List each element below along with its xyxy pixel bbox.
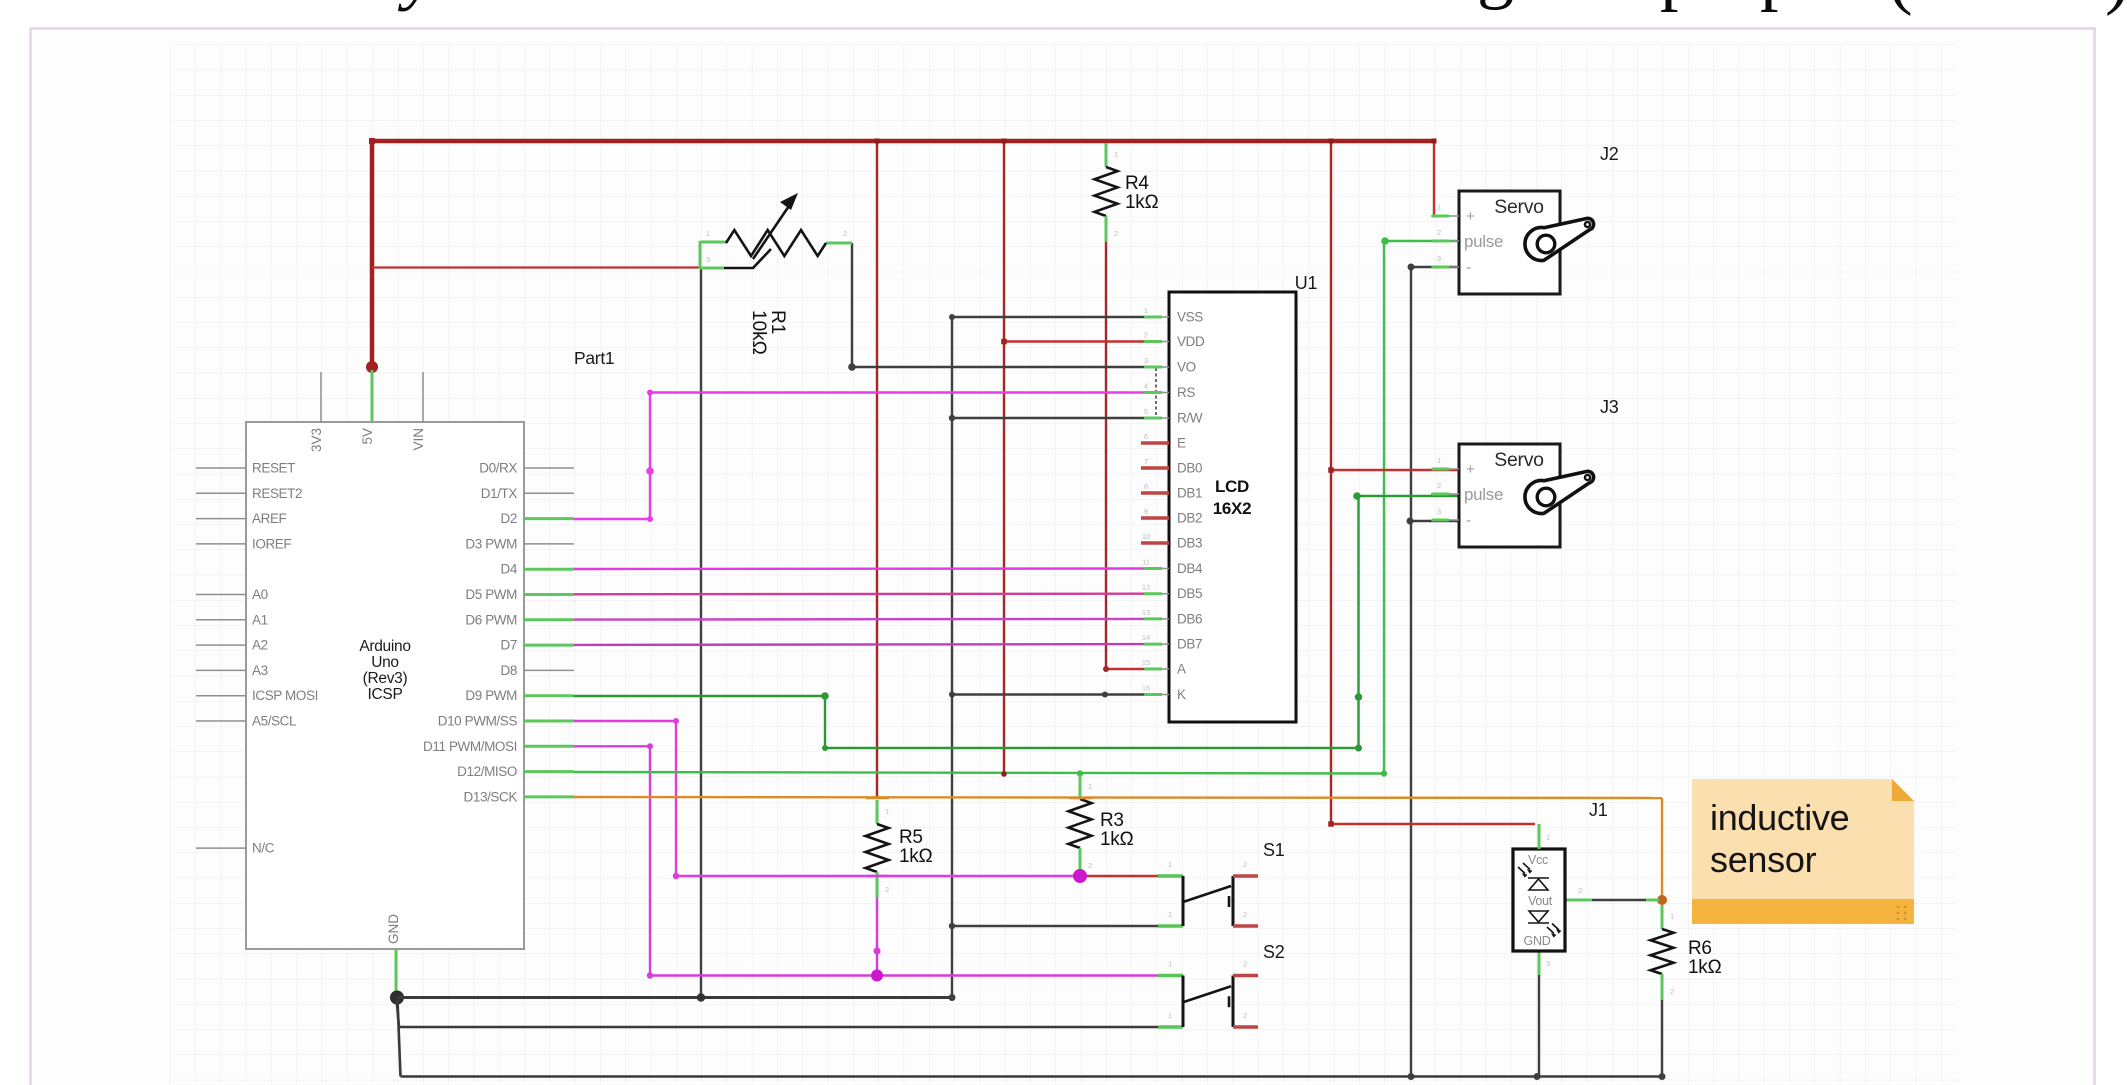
svg-text:1: 1 bbox=[1088, 782, 1092, 791]
svg-text:DB3: DB3 bbox=[1177, 536, 1202, 551]
svg-text:3: 3 bbox=[1144, 356, 1148, 365]
svg-text:2: 2 bbox=[1243, 960, 1247, 969]
svg-text:16: 16 bbox=[1142, 684, 1150, 693]
svg-text:10: 10 bbox=[1142, 532, 1150, 541]
svg-text:2: 2 bbox=[1670, 987, 1674, 996]
svg-text:VDD: VDD bbox=[1177, 334, 1205, 349]
svg-text:1: 1 bbox=[1144, 306, 1148, 315]
svg-text:D0/RX: D0/RX bbox=[479, 461, 517, 476]
svg-text:IOREF: IOREF bbox=[252, 536, 291, 551]
svg-text:A3: A3 bbox=[252, 663, 268, 678]
svg-text:(Rev3): (Rev3) bbox=[363, 670, 408, 687]
svg-text:D4: D4 bbox=[501, 562, 518, 577]
svg-text:D1/TX: D1/TX bbox=[481, 486, 518, 501]
svg-text:RESET2: RESET2 bbox=[252, 486, 302, 501]
svg-text:+: + bbox=[1466, 208, 1475, 225]
svg-text:D10 PWM/SS: D10 PWM/SS bbox=[438, 714, 518, 729]
svg-text:ICSP: ICSP bbox=[368, 686, 403, 703]
svg-text:S1: S1 bbox=[1263, 840, 1285, 860]
svg-text:A2: A2 bbox=[252, 638, 268, 653]
svg-text:R/W: R/W bbox=[1177, 411, 1203, 426]
svg-text:8: 8 bbox=[1144, 482, 1148, 491]
svg-text:2: 2 bbox=[1243, 860, 1247, 869]
svg-text:1: 1 bbox=[1670, 912, 1674, 921]
svg-text:2: 2 bbox=[1114, 229, 1118, 238]
svg-text:Vcc: Vcc bbox=[1528, 853, 1548, 867]
svg-text:DB0: DB0 bbox=[1177, 461, 1202, 476]
svg-text:10kΩ: 10kΩ bbox=[748, 310, 769, 355]
svg-text:7: 7 bbox=[1144, 457, 1148, 466]
svg-text:1: 1 bbox=[1168, 960, 1172, 969]
svg-text:Part1: Part1 bbox=[574, 348, 614, 368]
svg-text:13: 13 bbox=[1142, 608, 1150, 617]
svg-text:2: 2 bbox=[843, 229, 847, 238]
svg-text:1: 1 bbox=[1546, 833, 1550, 842]
svg-text:1: 1 bbox=[1437, 456, 1441, 465]
svg-text:AREF: AREF bbox=[252, 511, 287, 526]
svg-text:DB7: DB7 bbox=[1177, 637, 1202, 652]
svg-text:K: K bbox=[1177, 687, 1186, 702]
svg-text:Servo: Servo bbox=[1494, 196, 1544, 218]
svg-text:1kΩ: 1kΩ bbox=[1688, 957, 1721, 978]
svg-text:2: 2 bbox=[1088, 861, 1092, 870]
svg-text:GND: GND bbox=[1524, 934, 1551, 948]
svg-text:14: 14 bbox=[1142, 633, 1150, 642]
svg-text:D13/SCK: D13/SCK bbox=[464, 789, 518, 804]
svg-text:-: - bbox=[1466, 512, 1471, 529]
svg-text:LCD: LCD bbox=[1215, 477, 1249, 496]
svg-text:3: 3 bbox=[706, 255, 710, 264]
svg-text:3: 3 bbox=[1437, 254, 1441, 263]
svg-text:11: 11 bbox=[1142, 558, 1150, 567]
svg-text:R3: R3 bbox=[1100, 810, 1124, 831]
svg-text:12: 12 bbox=[1142, 583, 1150, 592]
svg-text:D9 PWM: D9 PWM bbox=[465, 688, 517, 703]
svg-text:D12/MISO: D12/MISO bbox=[457, 764, 517, 779]
svg-text:GND: GND bbox=[386, 914, 401, 944]
svg-text:J1: J1 bbox=[1589, 800, 1608, 820]
svg-text:Uno: Uno bbox=[371, 654, 399, 671]
svg-text:Servo: Servo bbox=[1494, 449, 1544, 471]
svg-text:1kΩ: 1kΩ bbox=[1125, 192, 1158, 213]
svg-text:A0: A0 bbox=[252, 587, 268, 602]
svg-text:pulse: pulse bbox=[1464, 485, 1503, 504]
svg-text:Arduino: Arduino bbox=[359, 638, 410, 655]
svg-text:1kΩ: 1kΩ bbox=[1100, 829, 1133, 850]
svg-text:S2: S2 bbox=[1263, 942, 1285, 962]
svg-text:1: 1 bbox=[1168, 910, 1172, 919]
svg-text:1: 1 bbox=[1114, 150, 1118, 159]
svg-text:J2: J2 bbox=[1600, 144, 1619, 164]
svg-text:DB2: DB2 bbox=[1177, 511, 1202, 526]
svg-text:3: 3 bbox=[1546, 959, 1550, 968]
svg-text:DB1: DB1 bbox=[1177, 486, 1202, 501]
svg-text:RESET: RESET bbox=[252, 461, 295, 476]
svg-text:1: 1 bbox=[706, 229, 710, 238]
svg-text:2: 2 bbox=[1578, 886, 1582, 895]
svg-text:D3 PWM: D3 PWM bbox=[465, 536, 517, 551]
svg-text:R1: R1 bbox=[767, 310, 788, 334]
svg-text:R5: R5 bbox=[899, 827, 923, 848]
svg-text:VO: VO bbox=[1177, 360, 1196, 375]
svg-text:2: 2 bbox=[1243, 1011, 1247, 1020]
svg-text:A: A bbox=[1177, 662, 1186, 677]
svg-text:sensor: sensor bbox=[1710, 839, 1817, 880]
svg-text:D11 PWM/MOSI: D11 PWM/MOSI bbox=[423, 739, 517, 754]
svg-text:A5/SCL: A5/SCL bbox=[252, 714, 297, 729]
svg-text:D8: D8 bbox=[501, 663, 517, 678]
svg-text:1: 1 bbox=[1168, 860, 1172, 869]
svg-text:2: 2 bbox=[1437, 481, 1441, 490]
svg-text:pulse: pulse bbox=[1464, 232, 1503, 251]
svg-text:D6 PWM: D6 PWM bbox=[465, 612, 517, 627]
svg-text:DB6: DB6 bbox=[1177, 611, 1202, 626]
svg-text:N/C: N/C bbox=[252, 841, 275, 856]
svg-text:ICSP MOSI: ICSP MOSI bbox=[252, 688, 318, 703]
svg-text:+: + bbox=[1466, 461, 1475, 478]
svg-text:5: 5 bbox=[1144, 407, 1148, 416]
svg-text:3: 3 bbox=[1437, 507, 1441, 516]
svg-text:U1: U1 bbox=[1295, 273, 1318, 293]
svg-text:2: 2 bbox=[885, 885, 889, 894]
svg-text:3V3: 3V3 bbox=[309, 428, 324, 452]
svg-text:15: 15 bbox=[1142, 658, 1150, 667]
svg-text:1kΩ: 1kΩ bbox=[899, 846, 932, 867]
svg-text:2: 2 bbox=[1144, 331, 1148, 340]
svg-text:DB4: DB4 bbox=[1177, 561, 1203, 576]
svg-text:DB5: DB5 bbox=[1177, 586, 1202, 601]
svg-text:D5 PWM: D5 PWM bbox=[465, 587, 517, 602]
svg-text:-: - bbox=[1466, 259, 1471, 276]
svg-text:5V: 5V bbox=[360, 428, 375, 445]
svg-text:VSS: VSS bbox=[1177, 310, 1203, 325]
svg-text:2: 2 bbox=[1243, 910, 1247, 919]
svg-text:E: E bbox=[1177, 436, 1186, 451]
svg-text:2: 2 bbox=[1437, 228, 1441, 237]
svg-text:1: 1 bbox=[1437, 203, 1441, 212]
svg-text:Vout: Vout bbox=[1528, 894, 1553, 908]
svg-text:6: 6 bbox=[1144, 432, 1148, 441]
svg-text:RS: RS bbox=[1177, 385, 1195, 400]
svg-text:inductive: inductive bbox=[1710, 797, 1849, 838]
svg-text:9: 9 bbox=[1144, 507, 1148, 516]
svg-text:1: 1 bbox=[885, 807, 889, 816]
svg-text:1: 1 bbox=[1168, 1011, 1172, 1020]
svg-text:R4: R4 bbox=[1125, 173, 1149, 194]
svg-text:VIN: VIN bbox=[411, 428, 426, 451]
svg-text:R6: R6 bbox=[1688, 938, 1712, 959]
svg-text:D7: D7 bbox=[501, 638, 517, 653]
svg-text:D2: D2 bbox=[501, 511, 517, 526]
svg-text:J3: J3 bbox=[1600, 397, 1619, 417]
svg-text:A1: A1 bbox=[252, 612, 268, 627]
svg-text:4: 4 bbox=[1144, 382, 1148, 391]
svg-text:16X2: 16X2 bbox=[1213, 499, 1252, 518]
